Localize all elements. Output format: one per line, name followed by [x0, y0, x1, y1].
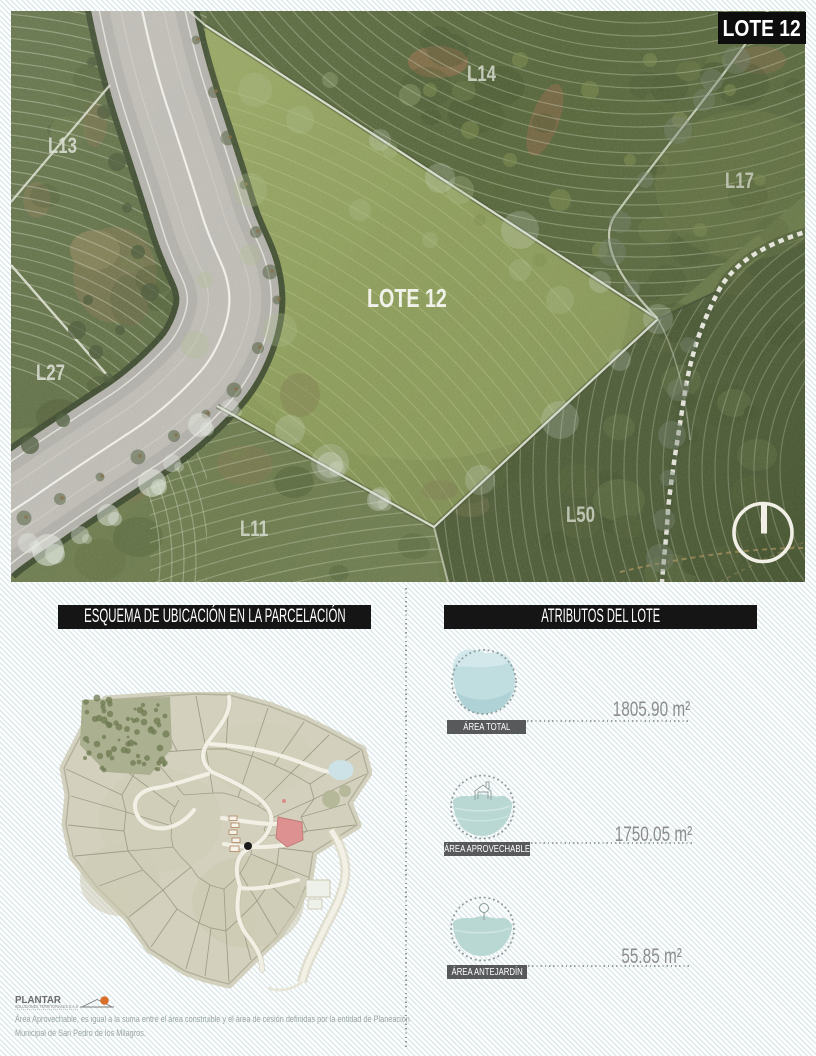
svg-text:LOTE 12: LOTE 12 — [367, 283, 447, 312]
svg-text:L50: L50 — [566, 503, 595, 528]
svg-text:L14: L14 — [467, 62, 496, 87]
svg-text:L11: L11 — [240, 517, 268, 542]
svg-text:L27: L27 — [36, 361, 65, 386]
svg-text:SOLUCIONES TERRITORIALES S.A.S: SOLUCIONES TERRITORIALES S.A.S — [15, 1004, 78, 1009]
svg-text:L17: L17 — [725, 169, 754, 194]
svg-text:L13: L13 — [48, 134, 77, 159]
